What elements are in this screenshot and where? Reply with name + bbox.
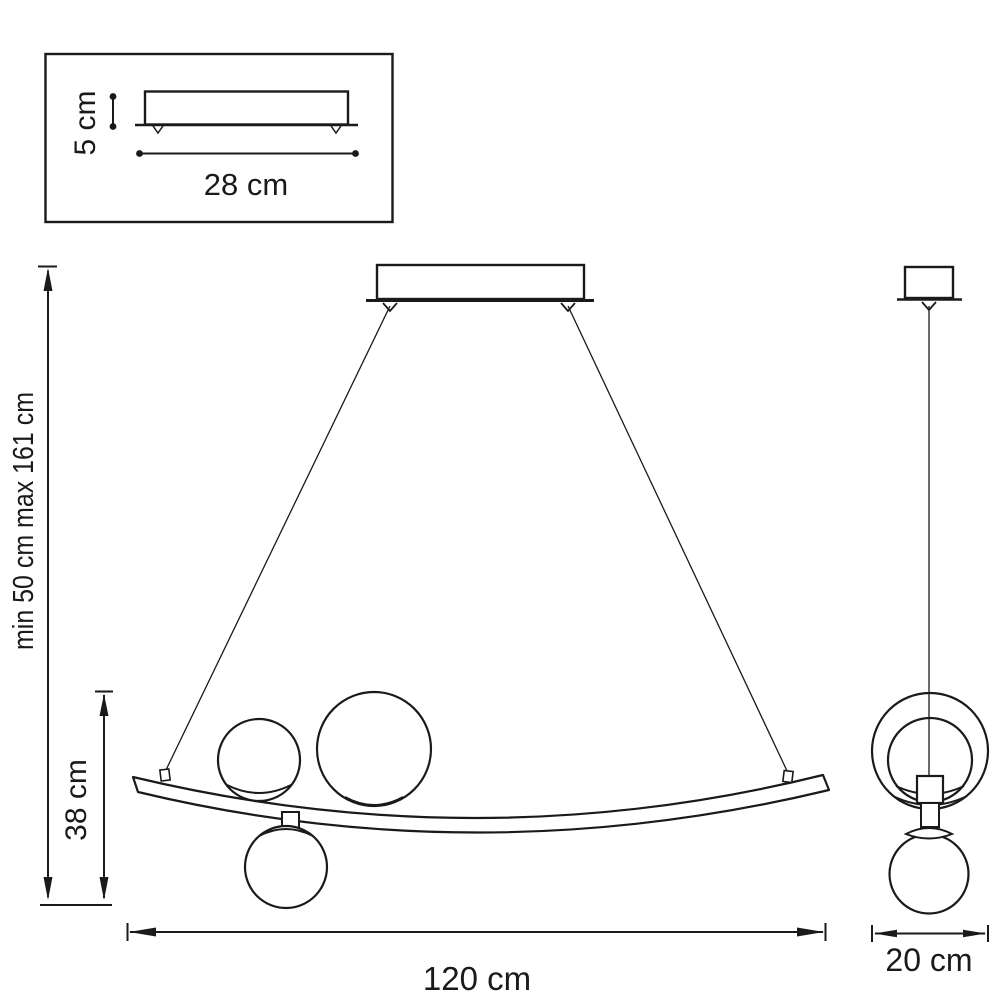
body-dim-arrow-down — [100, 877, 109, 900]
width-dim-arrow-right — [797, 928, 824, 937]
wire-clamp-right — [783, 770, 793, 782]
inset-canopy-clip-left — [153, 126, 163, 133]
inset-width-dimension: 28 cm — [136, 150, 359, 202]
globe-lower — [245, 826, 327, 908]
inset-height-dim-dot-bottom — [110, 123, 117, 130]
side-lower-stem — [921, 803, 939, 827]
front-width-dimension: 120 cm — [128, 923, 826, 997]
front-width-label: 120 cm — [423, 960, 531, 997]
globe-large-upper — [317, 692, 431, 806]
front-view: min 50 cm max 161 cm 38 cm 120 cm — [8, 265, 829, 997]
inset-canopy-detail: 5 cm 28 cm — [46, 54, 393, 222]
inset-height-dim-dot-top — [110, 93, 117, 100]
side-view: 20 cm — [872, 267, 988, 978]
inset-width-dim-dot-left — [136, 150, 143, 157]
front-fixture-height-dimension: 38 cm — [60, 692, 113, 901]
depth-dim-arrow-left — [874, 930, 897, 938]
inset-width-label: 28 cm — [204, 167, 288, 202]
susp-dim-arrow-up — [44, 268, 53, 291]
dimension-drawing-canvas: 5 cm 28 cm — [0, 0, 1000, 1000]
inset-height-label: 5 cm — [69, 90, 102, 155]
front-suspension-label: min 50 cm max 161 cm — [8, 392, 40, 650]
side-globe-lower-cap — [906, 828, 952, 839]
front-canopy-body — [377, 265, 584, 299]
suspension-wire-right — [568, 306, 788, 773]
side-bar-section — [917, 776, 943, 803]
inset-canopy-body — [145, 92, 348, 125]
inset-height-dimension: 5 cm — [69, 90, 116, 155]
depth-dim-arrow-right — [963, 930, 986, 938]
body-dim-arrow-up — [100, 694, 109, 716]
side-depth-label: 20 cm — [885, 942, 972, 978]
technical-drawing-pendant-lamp: 5 cm 28 cm — [0, 0, 1000, 1000]
width-dim-arrow-left — [129, 928, 156, 937]
side-globe-lower — [890, 835, 969, 914]
susp-dim-arrow-down — [44, 877, 53, 900]
front-fixture-height-label: 38 cm — [60, 759, 93, 841]
wire-clamp-left — [160, 769, 170, 781]
globe-small-upper — [218, 719, 300, 801]
side-canopy-body — [905, 267, 953, 298]
inset-width-dim-dot-right — [352, 150, 359, 157]
inset-canopy-clip-right — [331, 126, 341, 133]
side-depth-dimension: 20 cm — [872, 925, 988, 978]
